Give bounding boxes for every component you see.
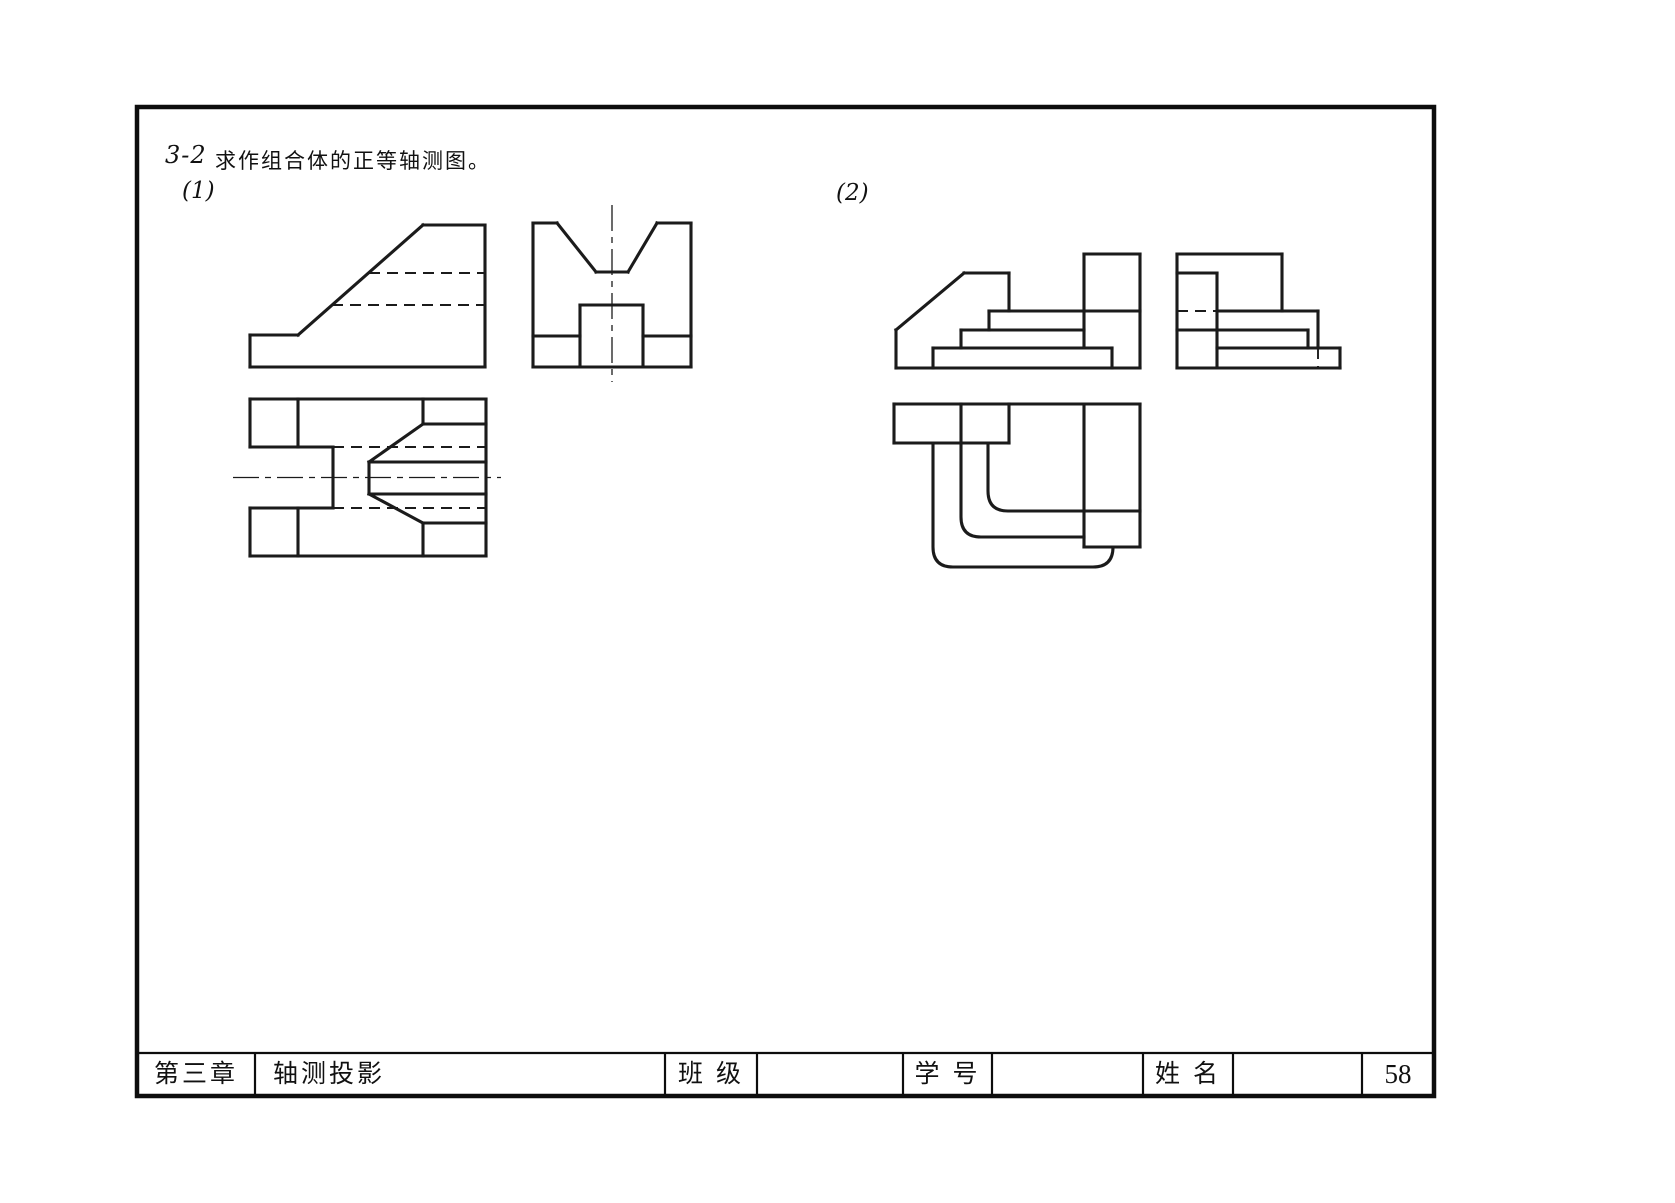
p2-side-view [1177,254,1340,368]
p1-front-view [250,225,485,367]
titleblock-chapter: 第三章 [137,1053,255,1096]
titleblock-name-label: 姓 名 [1143,1053,1233,1096]
p2-front-view [896,254,1140,368]
p1-side-view [533,205,691,382]
problem-number: 3-2 [165,141,207,169]
p1-top-view [233,399,501,556]
problem-part2-label: (2) [836,180,869,206]
problem-part1-label: (1) [182,178,215,204]
titleblock-student-id-label: 学 号 [903,1053,992,1096]
titleblock-course-title: 轴测投影 [273,1053,665,1096]
class-input-cell[interactable] [757,1053,903,1096]
worksheet-page: 3-2 求作组合体的正等轴测图。 (1) (2) 第三章 轴测投影 班 级 学 … [0,0,1675,1203]
page-number: 58 [1362,1053,1434,1096]
problem-statement: 求作组合体的正等轴测图。 [215,145,491,175]
student-id-input-cell[interactable] [992,1053,1143,1096]
name-input-cell[interactable] [1233,1053,1362,1096]
titleblock-class-label: 班 级 [665,1053,757,1096]
p2-top-view [894,404,1140,567]
